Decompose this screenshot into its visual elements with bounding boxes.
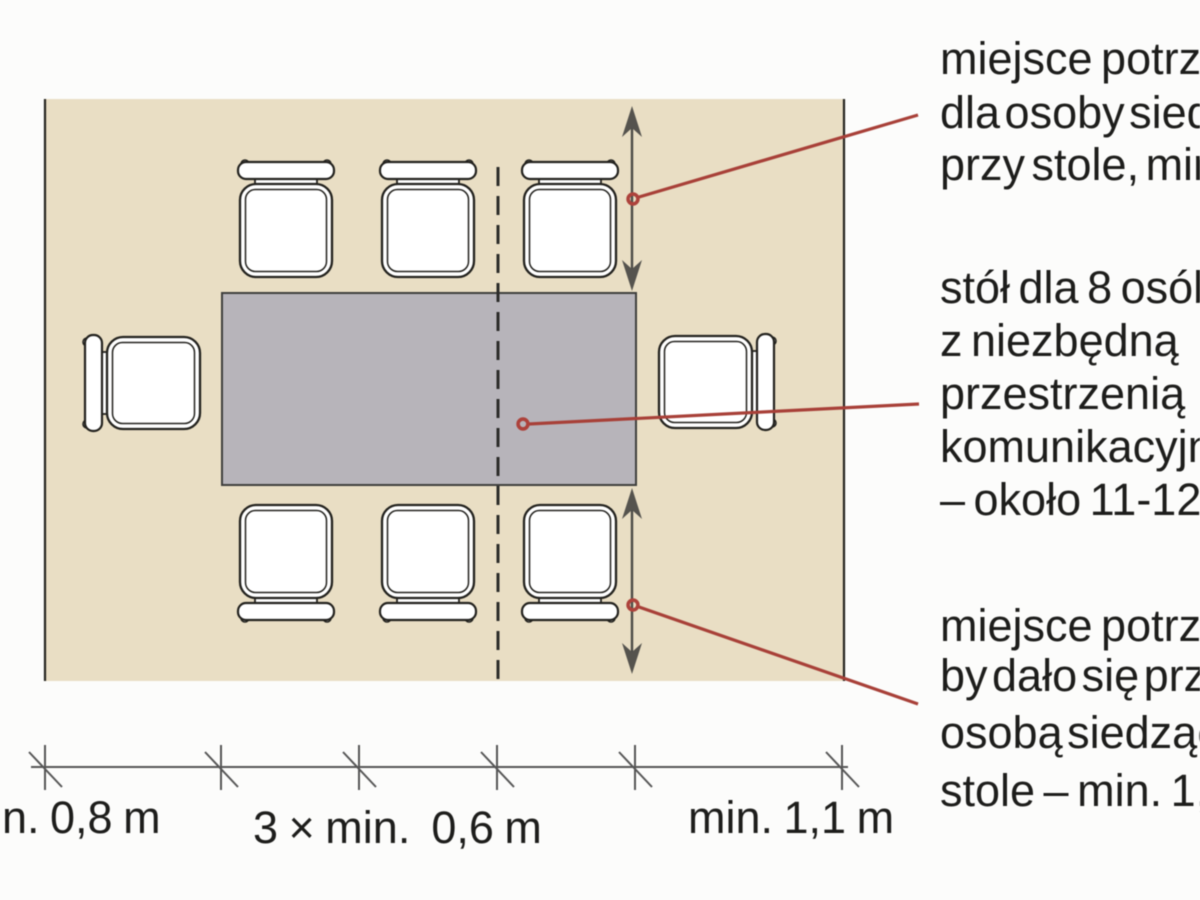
svg-text:min. 1,1 m: min. 1,1 m bbox=[688, 792, 894, 843]
svg-text:komunikacyjną: komunikacyjną bbox=[940, 421, 1200, 472]
svg-text:przestrzenią: przestrzenią bbox=[940, 368, 1186, 419]
svg-text:miejsce potrzebne,: miejsce potrzebne, bbox=[940, 600, 1200, 651]
svg-text:stole – min. 1,1 m: stole – min. 1,1 m bbox=[940, 765, 1200, 816]
svg-text:stół dla 8 osób: stół dla 8 osób bbox=[940, 262, 1200, 313]
svg-text:osobą siedzącą przy: osobą siedzącą przy bbox=[940, 707, 1200, 758]
svg-text:miejsce potrzebne: miejsce potrzebne bbox=[940, 33, 1200, 84]
svg-text:przy stole, min. 0,6 m: przy stole, min. 0,6 m bbox=[940, 139, 1200, 190]
svg-text:3 × min. 0,6 m: 3 × min. 0,6 m bbox=[253, 802, 542, 853]
svg-text:z niezbędną: z niezbędną bbox=[940, 315, 1180, 366]
svg-text:– około 11-12 m: – około 11-12 m bbox=[940, 474, 1200, 525]
svg-text:n. 0,8 m: n. 0,8 m bbox=[2, 792, 161, 843]
svg-text:dla osoby siedzącej: dla osoby siedzącej bbox=[940, 87, 1200, 138]
svg-text:by dało się przejść za: by dało się przejść za bbox=[940, 650, 1200, 701]
